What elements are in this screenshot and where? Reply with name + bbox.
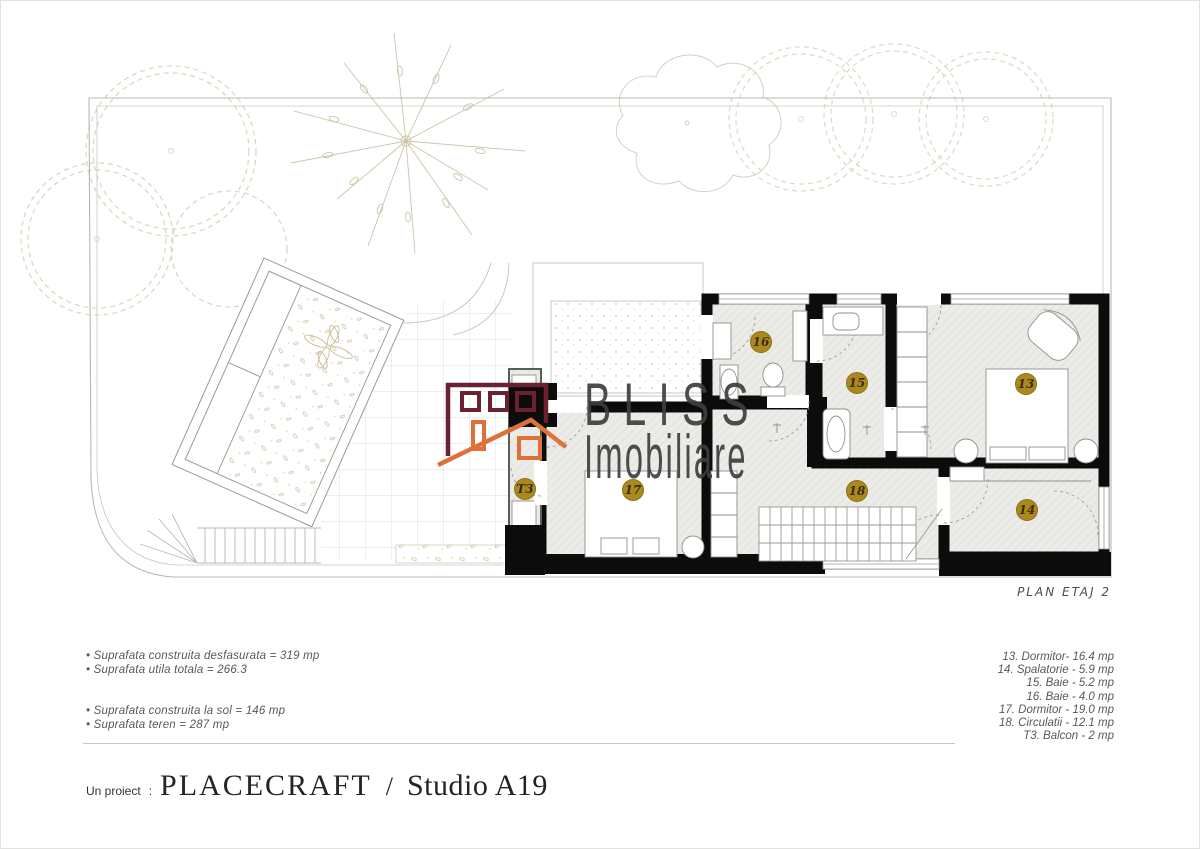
legend-entry: 15. Baie - 5.2 mp [998, 677, 1114, 690]
room-badge-16: 16 [750, 331, 772, 353]
footer-project-name: Studio A19 [407, 769, 548, 803]
legend-entry: 18. Circulatii - 12.1 mp [998, 717, 1114, 730]
stat-line: • Suprafata utila totala = 266.3 [86, 663, 320, 677]
room-badge-14: 14 [1016, 499, 1038, 521]
area-stats-group-1: • Suprafata construita desfasurata = 319… [86, 649, 320, 677]
floor-plan-page: BLISS Imobiliare 161513171814T3 PLAN ETA… [0, 0, 1200, 849]
legend-entry: T3. Balcon - 2 mp [998, 730, 1114, 743]
legend-entry: 16. Baie - 4.0 mp [998, 691, 1114, 704]
stat-line: • Suprafata teren = 287 mp [86, 718, 285, 732]
legend-entry: 13. Dormitor- 16.4 mp [998, 651, 1114, 664]
footer-prefix: Un proiect [86, 784, 141, 798]
room-badge-T3: T3 [514, 478, 536, 500]
stat-line: • Suprafata construita la sol = 146 mp [86, 704, 285, 718]
room-badge-15: 15 [846, 372, 868, 394]
plan-title: PLAN ETAJ 2 [1017, 585, 1111, 599]
project-footer: Un proiect : PLACECRAFT / Studio A19 [86, 769, 548, 803]
legend-entry: 17. Dormitor - 19.0 mp [998, 704, 1114, 717]
footer-slash: / [380, 772, 399, 802]
room-badge-13: 13 [1015, 373, 1037, 395]
footer-colon: : [149, 784, 152, 798]
stat-line: • Suprafata construita desfasurata = 319… [86, 649, 320, 663]
legend-entry: 14. Spalatorie - 5.9 mp [998, 664, 1114, 677]
footer-studio-name: PLACECRAFT [160, 769, 372, 803]
room-legend: 13. Dormitor- 16.4 mp14. Spalatorie - 5.… [998, 651, 1114, 743]
area-stats-group-2: • Suprafata construita la sol = 146 mp• … [86, 704, 285, 732]
room-badge-18: 18 [846, 480, 868, 502]
room-badge-17: 17 [622, 479, 644, 501]
footer-divider [83, 743, 955, 744]
